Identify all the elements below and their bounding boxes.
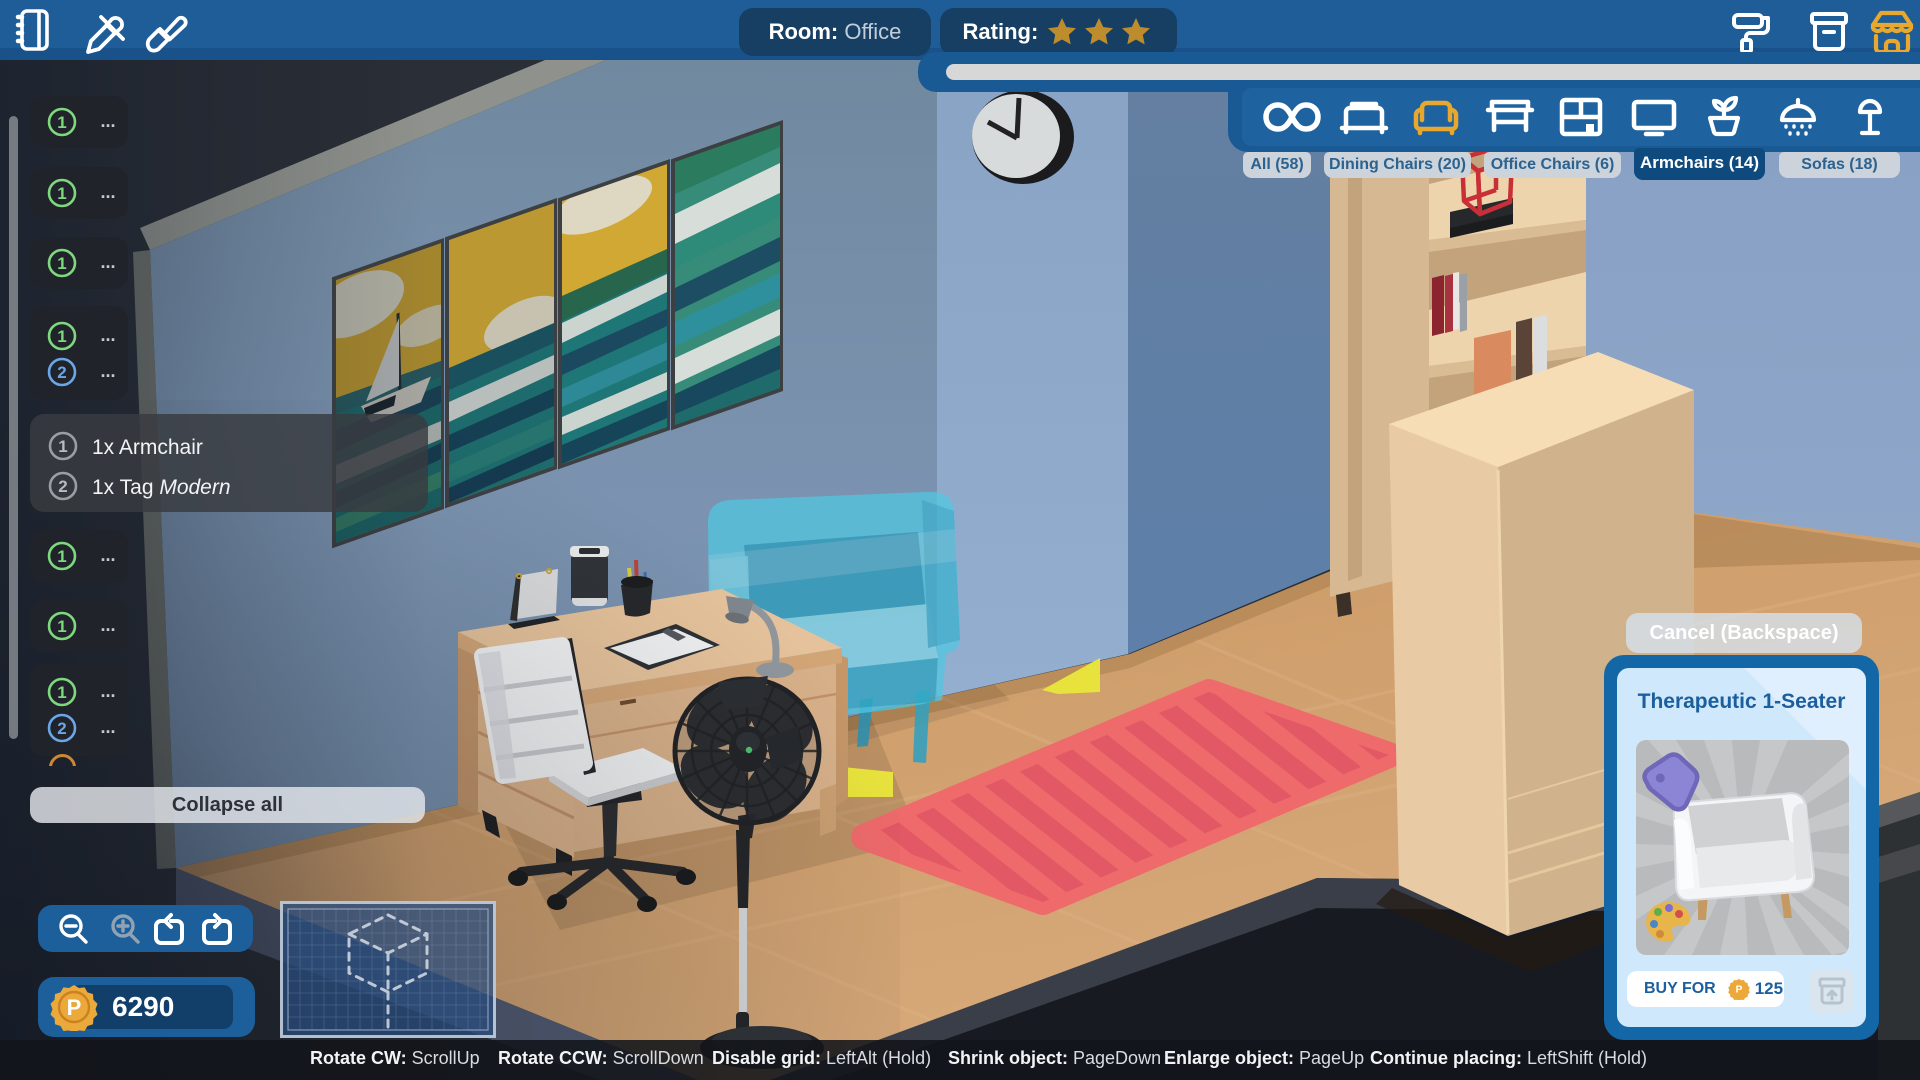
svg-text:1x Armchair: 1x Armchair (92, 436, 203, 459)
svg-text:...: ... (100, 325, 115, 345)
svg-text:1: 1 (57, 617, 66, 636)
svg-text:2: 2 (58, 477, 67, 496)
svg-text:1: 1 (57, 113, 66, 132)
svg-text:...: ... (100, 361, 115, 381)
svg-text:1x Tag Modern: 1x Tag Modern (92, 476, 231, 499)
svg-text:1: 1 (57, 327, 66, 346)
svg-text:...: ... (100, 717, 115, 737)
svg-text:1: 1 (58, 437, 67, 456)
svg-text:...: ... (100, 182, 115, 202)
svg-text:...: ... (100, 252, 115, 272)
svg-text:1: 1 (57, 184, 66, 203)
svg-text:2: 2 (57, 719, 66, 738)
svg-text:2: 2 (57, 363, 66, 382)
svg-text:...: ... (100, 681, 115, 701)
svg-text:P: P (67, 995, 82, 1020)
svg-text:P: P (1735, 985, 1742, 996)
svg-text:...: ... (100, 111, 115, 131)
svg-text:...: ... (100, 615, 115, 635)
svg-text:1: 1 (57, 547, 66, 566)
svg-text:...: ... (100, 545, 115, 565)
svg-text:1: 1 (57, 254, 66, 273)
svg-text:1: 1 (57, 683, 66, 702)
